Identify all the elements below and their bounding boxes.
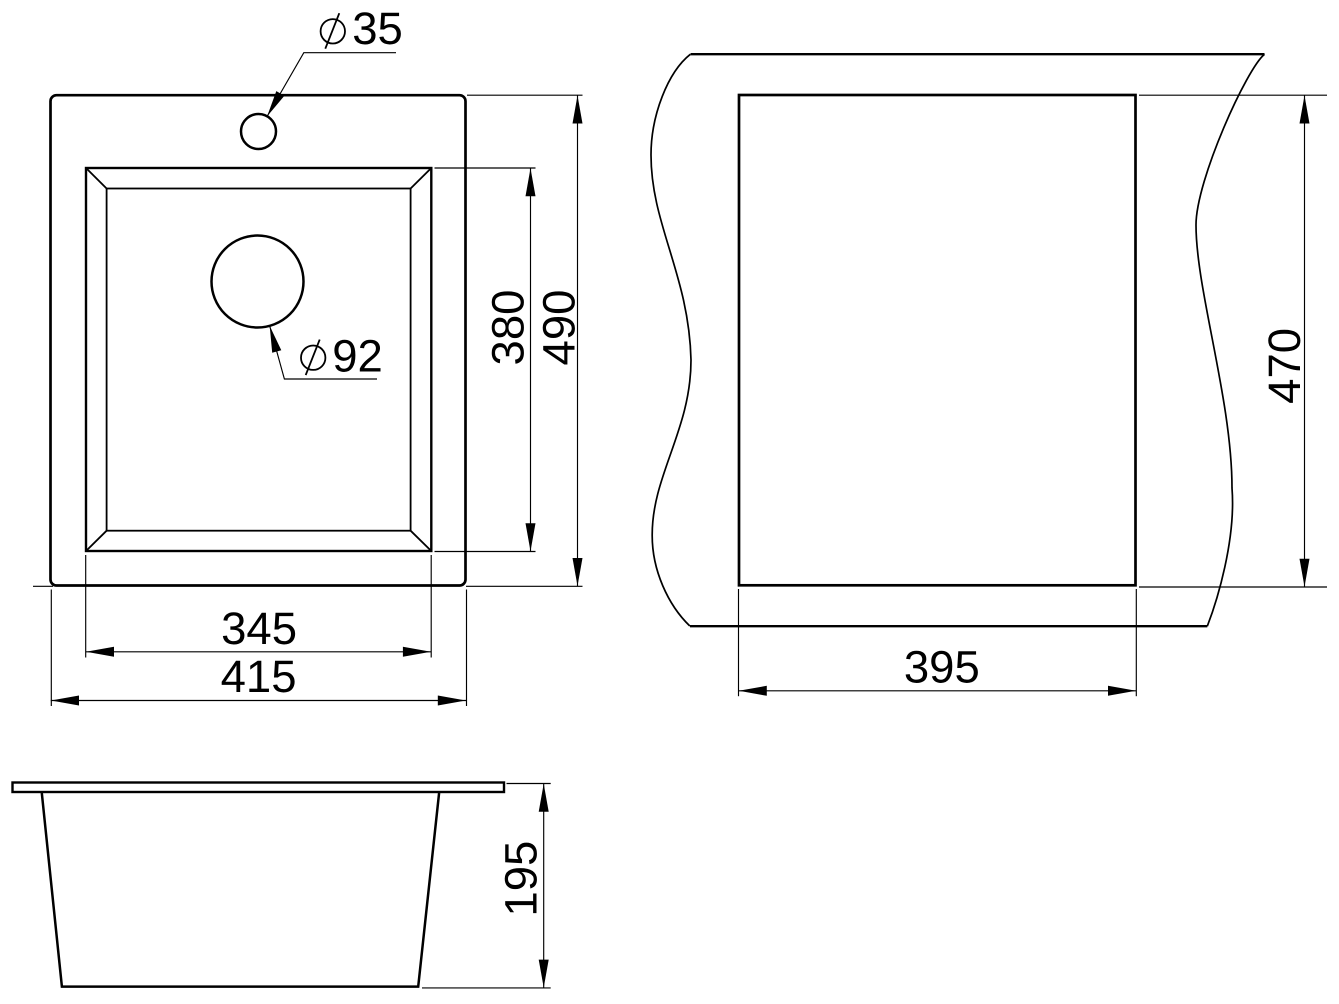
svg-text:195: 195 — [496, 841, 547, 917]
svg-text:35: 35 — [352, 3, 403, 54]
svg-text:395: 395 — [904, 642, 980, 693]
svg-text:490: 490 — [534, 290, 585, 366]
svg-text:92: 92 — [332, 330, 383, 381]
svg-text:470: 470 — [1259, 328, 1310, 404]
svg-text:415: 415 — [221, 651, 297, 702]
svg-text:380: 380 — [483, 290, 534, 366]
svg-text:345: 345 — [221, 603, 297, 654]
